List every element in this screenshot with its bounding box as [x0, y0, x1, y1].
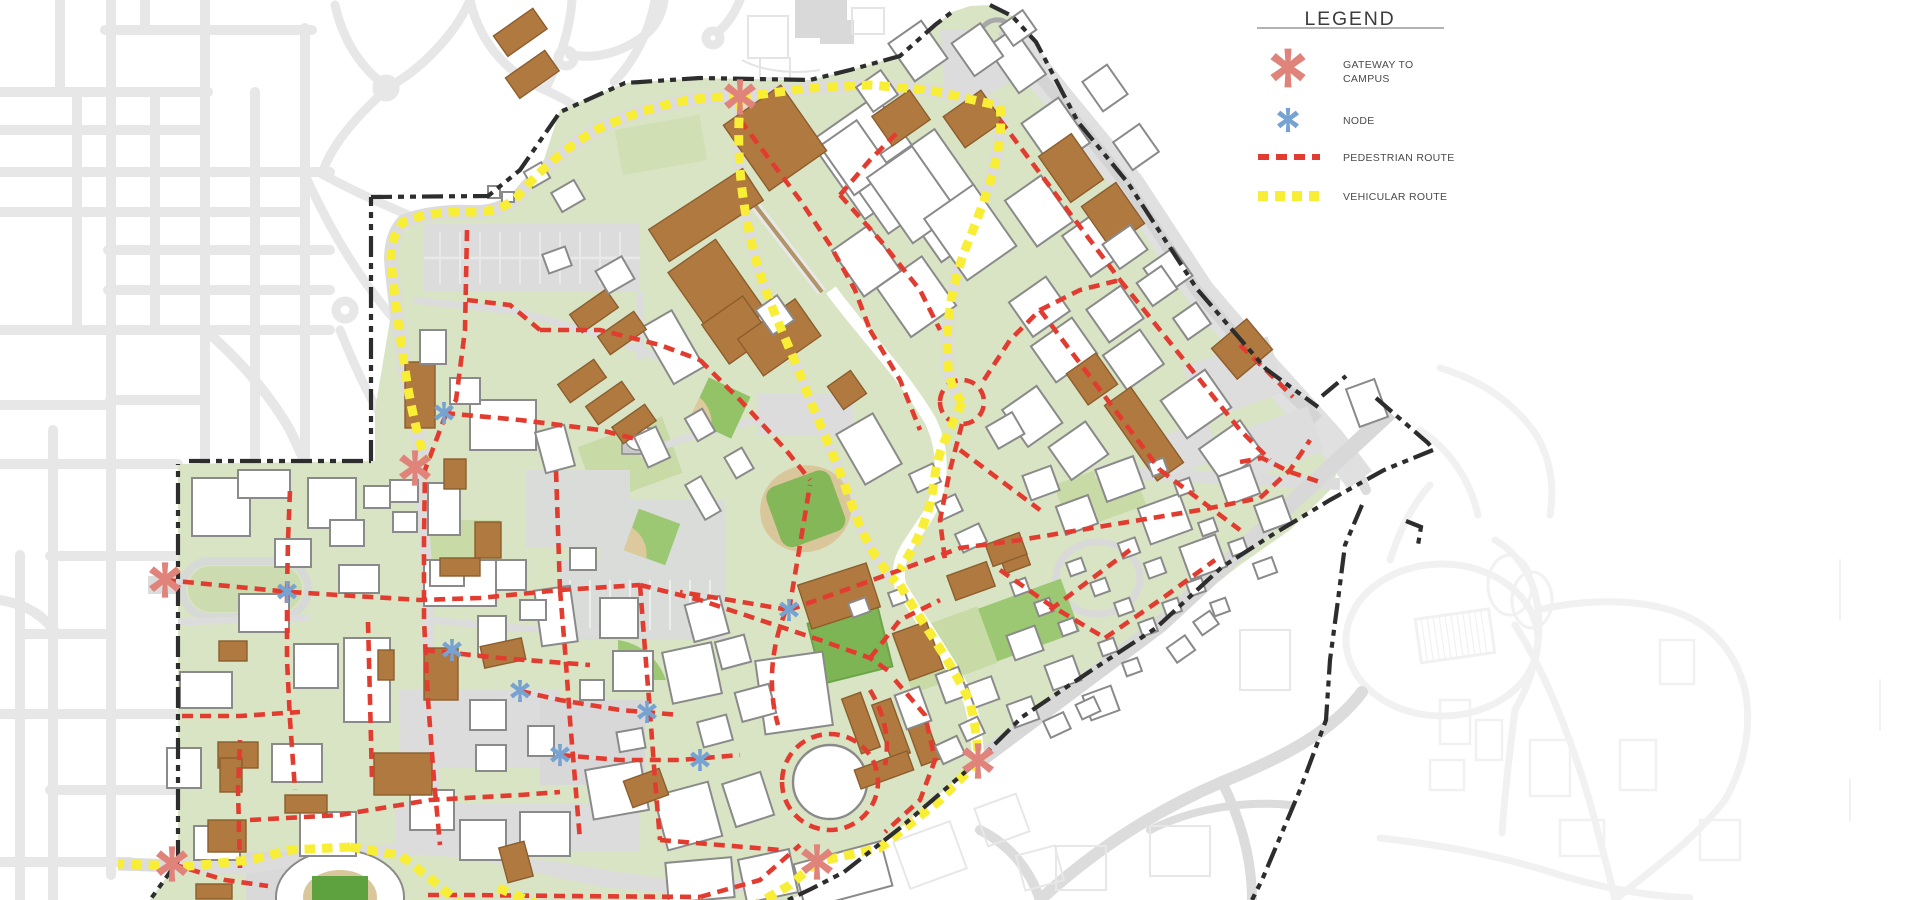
svg-text:PEDESTRIAN ROUTE: PEDESTRIAN ROUTE: [1343, 152, 1455, 164]
svg-text:NODE: NODE: [1343, 115, 1375, 127]
svg-text:LEGEND: LEGEND: [1305, 8, 1396, 30]
svg-text:CAMPUS: CAMPUS: [1343, 73, 1390, 85]
svg-text:GATEWAY TO: GATEWAY TO: [1343, 59, 1414, 71]
svg-text:VEHICULAR ROUTE: VEHICULAR ROUTE: [1343, 191, 1447, 203]
